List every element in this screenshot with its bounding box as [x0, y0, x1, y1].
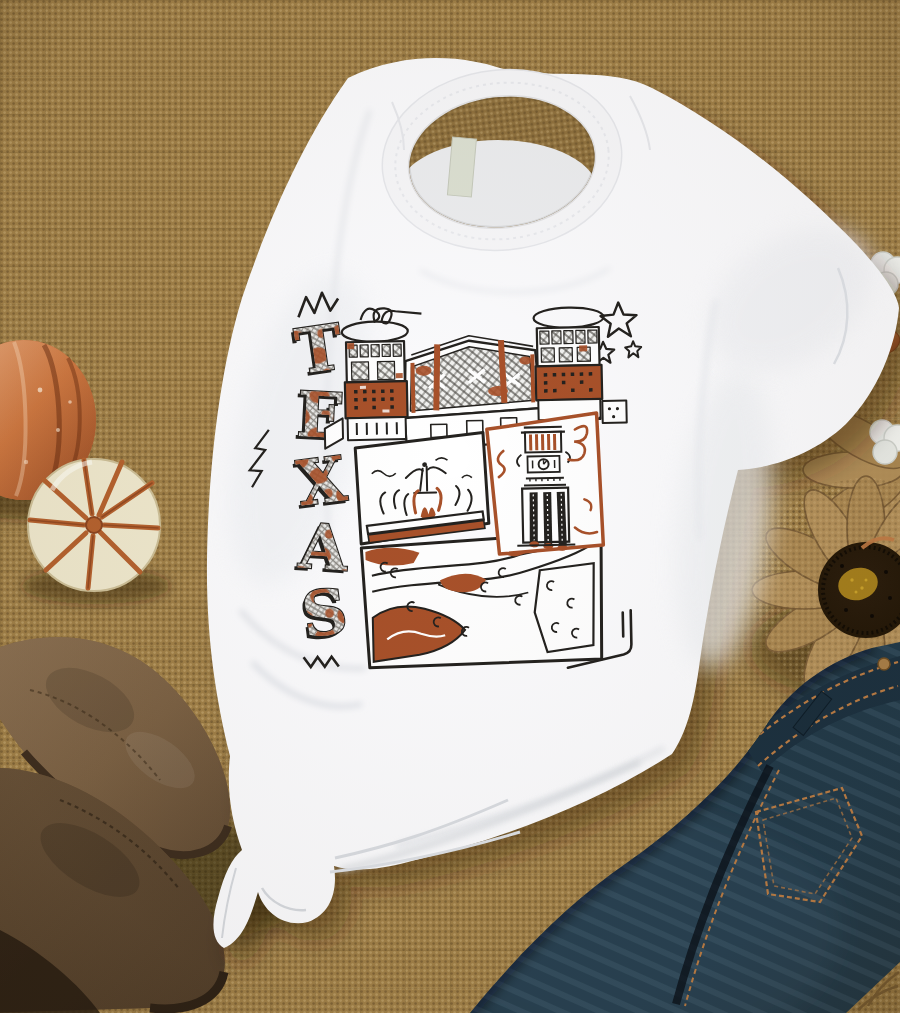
product-photo: T T T E E E X X X A A A S S S	[0, 0, 900, 1013]
photo-canvas: T T T E E E X X X A A A S S S	[0, 0, 900, 1013]
vignette-overlay	[0, 0, 900, 1013]
